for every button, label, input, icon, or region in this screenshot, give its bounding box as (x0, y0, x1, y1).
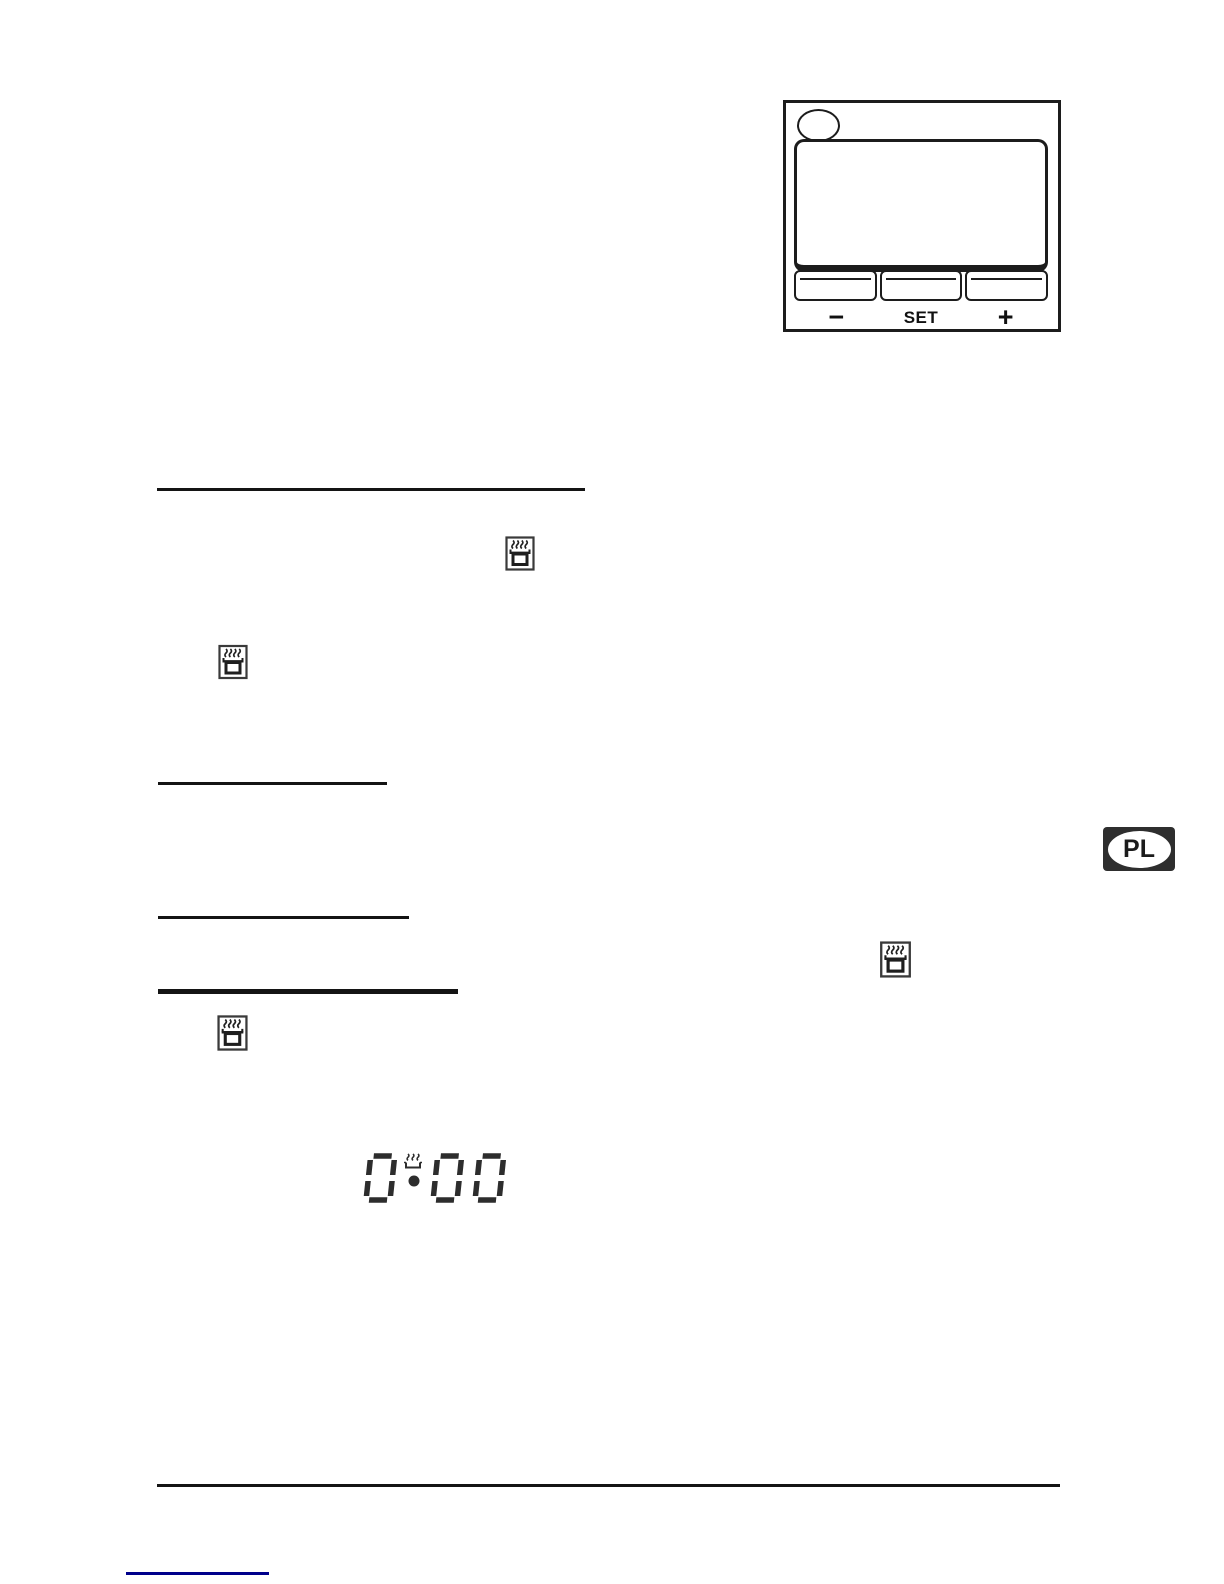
pot-steam-icon (217, 1014, 248, 1052)
minus-button (794, 270, 877, 301)
pot-steam-icon (505, 536, 535, 571)
set-button (880, 270, 963, 301)
panel-display (794, 139, 1048, 272)
manual-page: − SET + PL (0, 0, 1224, 1584)
pl-badge-label: PL (1123, 835, 1155, 864)
heading-underline-4 (158, 989, 458, 994)
plus-label: + (963, 305, 1048, 330)
panel-button-labels: − SET + (794, 305, 1048, 330)
footer-rule (157, 1484, 1060, 1487)
footer-link-underline[interactable] (126, 1572, 269, 1575)
pot-steam-icon (879, 941, 912, 978)
indicator-lamp-icon (797, 109, 840, 142)
segment-display (360, 1150, 510, 1206)
set-label: SET (879, 305, 964, 330)
heading-underline-2 (158, 782, 387, 785)
heading-underline-3 (158, 916, 409, 919)
minus-label: − (794, 305, 879, 330)
pl-badge-oval: PL (1108, 831, 1171, 868)
heading-underline-1 (157, 488, 585, 491)
control-panel-figure: − SET + (783, 100, 1061, 332)
pl-country-badge: PL (1103, 827, 1175, 871)
panel-button-row (794, 270, 1048, 301)
plus-button (965, 270, 1048, 301)
pot-steam-icon (218, 644, 248, 680)
